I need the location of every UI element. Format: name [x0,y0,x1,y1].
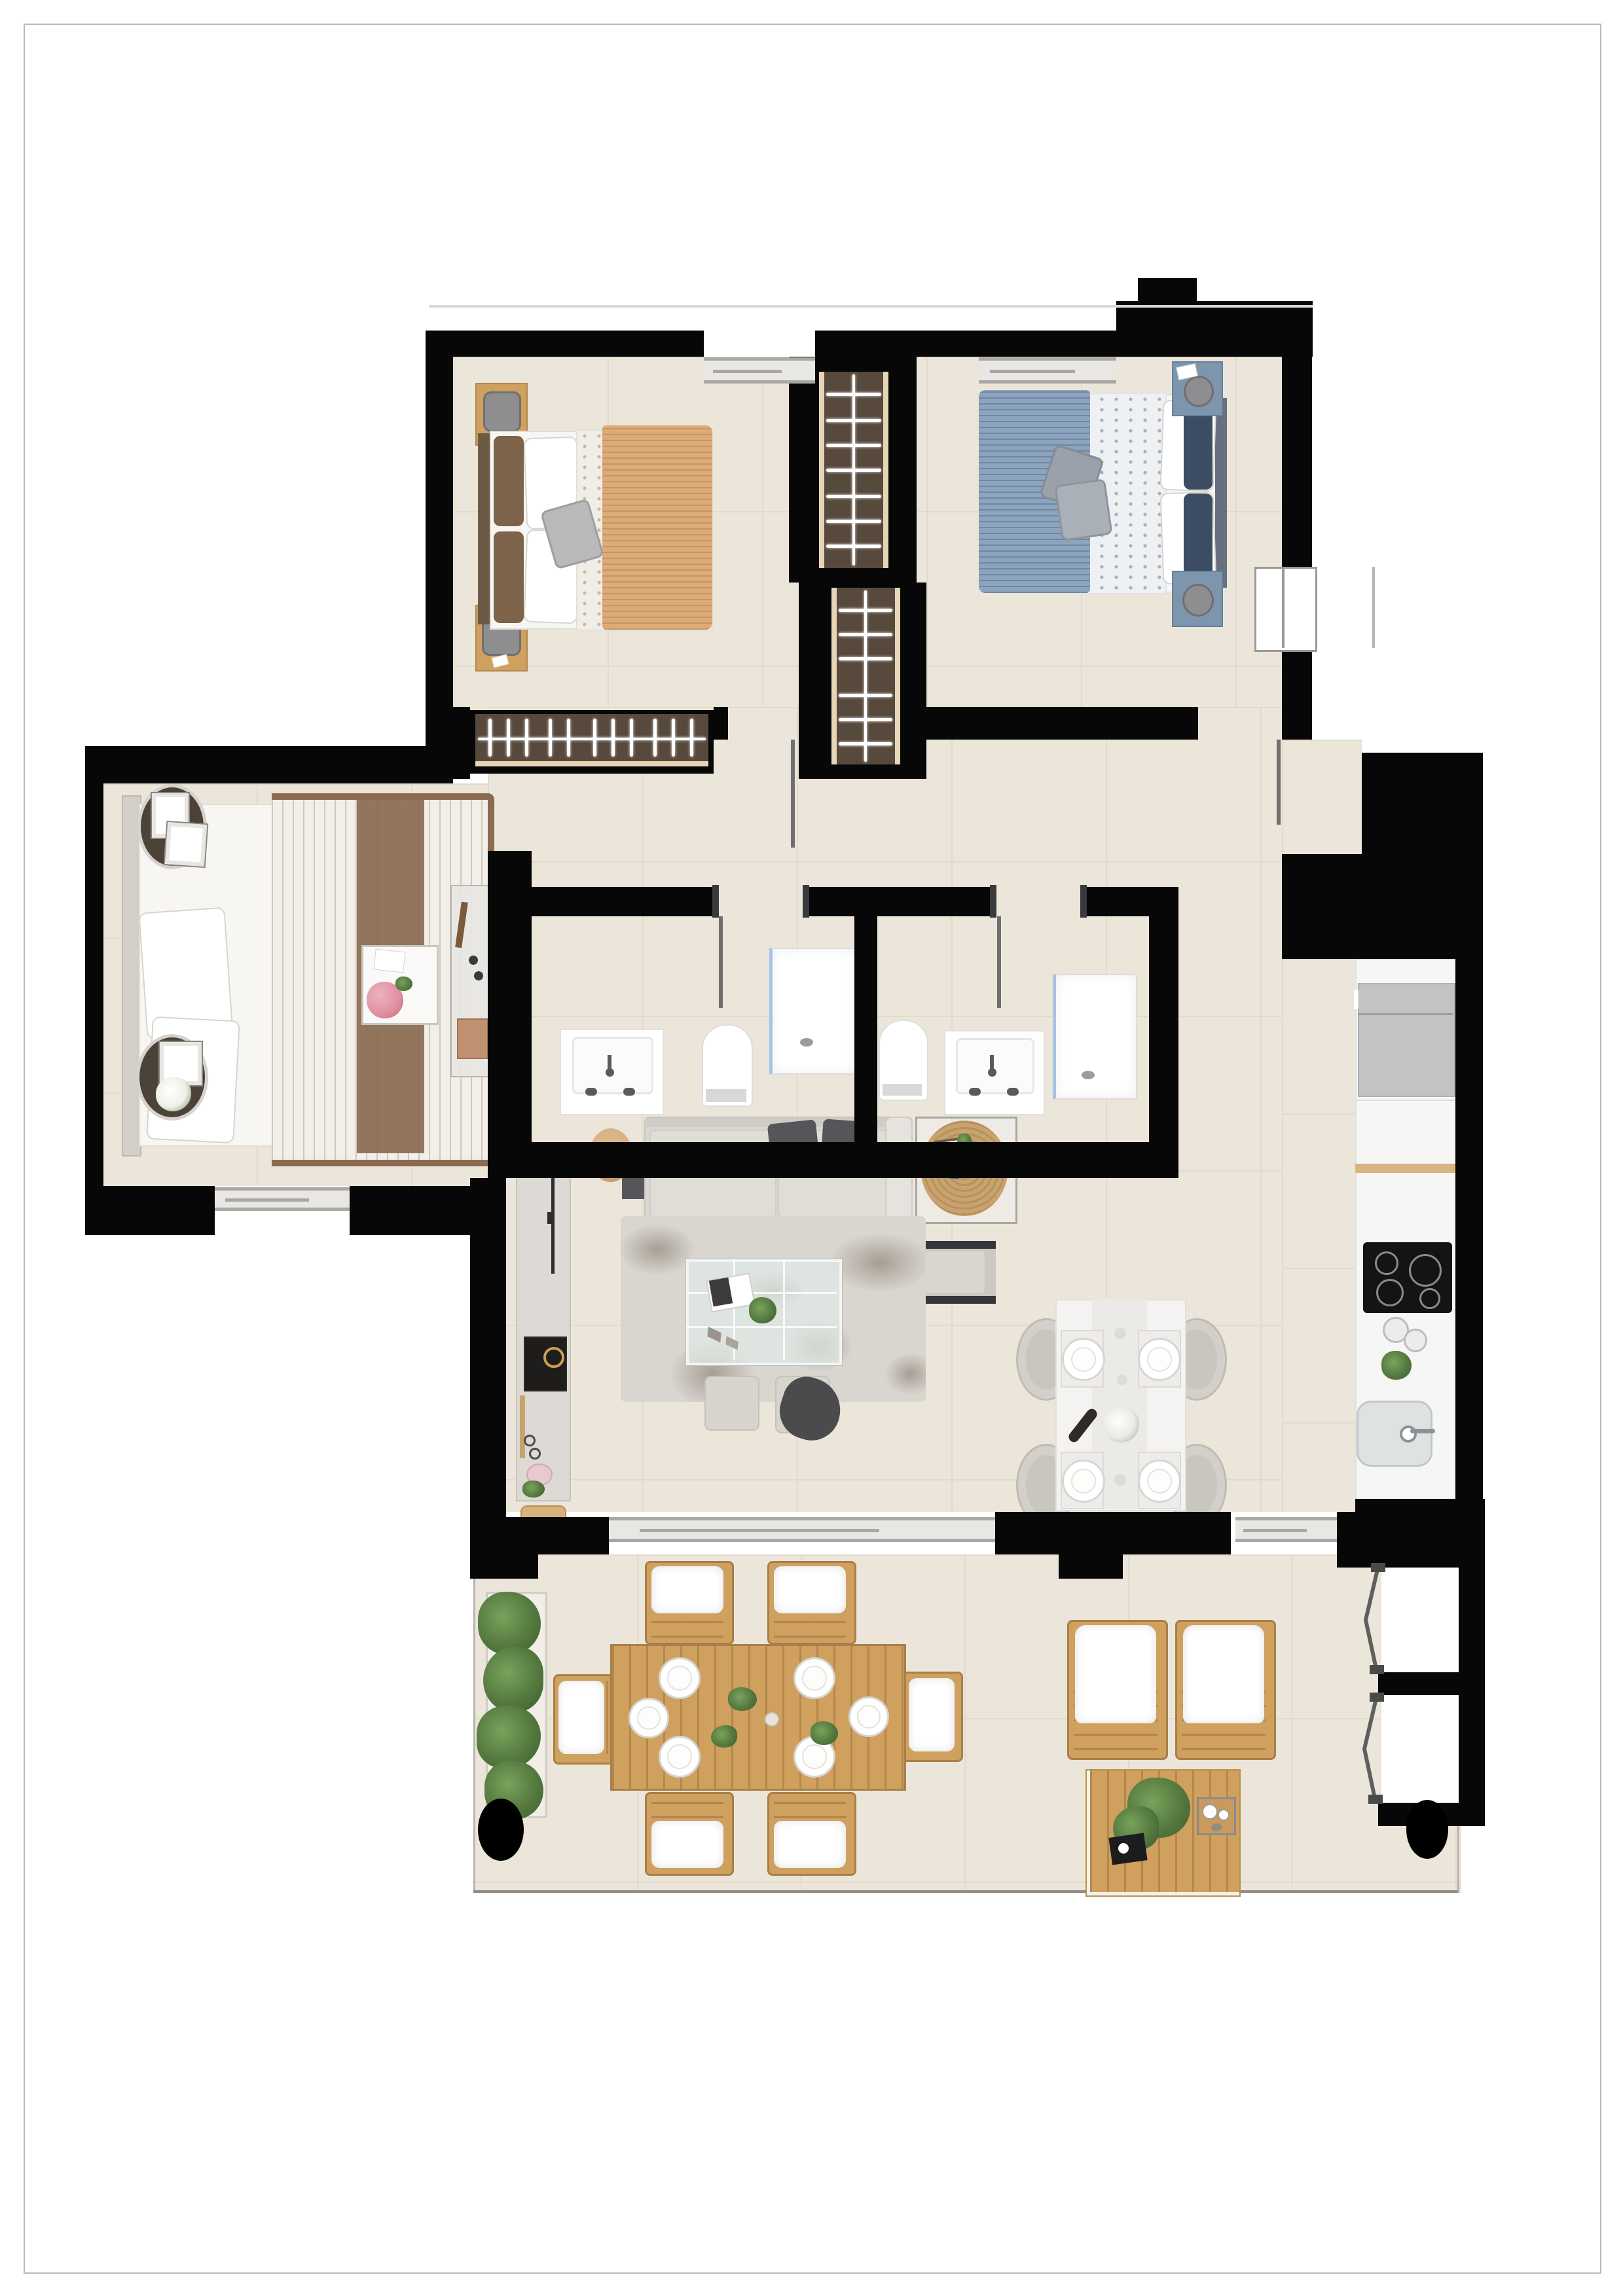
bath1-toilet-base [706,1089,746,1102]
shower-drain-icon [800,1038,813,1047]
book-on-tray [373,949,405,973]
decor-ring [524,1435,536,1446]
picture-frame-icon [165,822,207,867]
hanger-icon [826,545,881,548]
closet-rail [883,372,888,568]
plate-icon [848,1696,889,1737]
wall-terrace-right-a [1459,1568,1485,1672]
hanger-icon [653,719,657,757]
coffee-table-grid [783,1259,785,1360]
kitchen-sink [1357,1401,1432,1467]
bed1-headboard [478,433,490,624]
door-leaf-bedroom2 [1277,740,1281,825]
wall-master-bath-divider [488,851,532,1142]
leaf-icon [395,977,412,991]
closet-rail [819,372,824,568]
hanger-icon [826,444,881,447]
wall-bedroom1-west [426,331,453,779]
cup-icon [1218,1809,1230,1821]
bath2-shower [1053,974,1137,1100]
wall-terrace-step-a [506,1517,609,1554]
wall-bedroom1-south [714,707,728,740]
bath1-shower [769,948,856,1075]
round-column [478,1799,524,1861]
console-decor-tray [457,1018,488,1059]
kitchen-wood-board [1355,1164,1455,1173]
pot-icon [1404,1329,1427,1352]
armchair-seat [924,1251,985,1293]
bath2-toilet-base [883,1084,922,1096]
chair-slats [774,1796,846,1818]
bath2-basin [956,1038,1034,1094]
terrace-edge-right [1457,1826,1459,1892]
wall-south-mid [995,1512,1231,1554]
fridge [1358,983,1455,1097]
runner-dish-icon [1114,1474,1126,1486]
wardrobe-rail [475,761,708,766]
wall-bath-north-b [807,887,854,916]
terrace-sliding-door-2 [1235,1517,1337,1542]
wall-master-south-b [350,1186,488,1235]
magazine-dot [1118,1843,1129,1854]
closet-rail [895,588,900,764]
hanger-icon [525,719,528,757]
kitchen-plant-icon [1381,1351,1412,1380]
faucet-icon [988,1068,996,1077]
wall-ne-block [1362,753,1483,854]
window-east-outer-line [1372,567,1375,648]
planter-bush [483,1647,543,1712]
door-frame-tick [990,885,996,918]
round-column [1406,1800,1448,1859]
hanger-icon [839,718,892,721]
decor-stick [520,1395,525,1458]
chair-slats [651,1796,723,1818]
tap-handle-icon [969,1088,981,1096]
wall-kitchen-bottom [1355,1499,1485,1513]
plate-icon [1062,1338,1105,1381]
hob-burner [1376,1279,1404,1306]
wall-bath-mid [854,887,877,1142]
stone-icon [1211,1823,1222,1831]
hanger-icon [630,719,633,757]
hanger-icon [826,520,881,523]
runner-dish-icon [1114,1327,1126,1339]
hanger-icon [611,719,615,757]
hanger-icon [839,657,892,660]
bed2-navy-bolster [1184,493,1213,581]
wall-master-west [85,746,103,1235]
sliding-window-bedroom2 [979,357,1116,384]
teapot-icon [1202,1804,1218,1820]
door-frame-tick [1080,885,1087,918]
door-frame-tick [712,885,719,918]
wall-bedroom2-east-a [1282,357,1312,568]
table-greenery-icon [728,1687,757,1711]
wall-terrace-right-b [1459,1695,1485,1803]
chair-cushion [909,1678,955,1751]
wall-south-stub [1059,1554,1123,1579]
plate-icon [1062,1460,1105,1503]
fridge-handle [1354,990,1359,1009]
closet-rail [831,588,837,764]
console-decor-dot [474,971,483,980]
faucet-icon [606,1068,614,1077]
table-greenery-icon [711,1725,737,1748]
console-decor-dot [469,956,478,965]
tray-icon [1184,376,1214,407]
door-leaf-bath2 [997,916,1001,1008]
hanger-icon [826,495,881,498]
chair-cushion [651,1566,723,1613]
plate-icon [659,1657,701,1699]
faucet-icon [1400,1426,1417,1443]
planter-bush [478,1592,541,1655]
decor-gold-rings [543,1347,564,1368]
hanger-icon [672,719,675,757]
hanger-icon [839,742,892,745]
hob-burner [1419,1288,1440,1309]
plate-icon [1138,1338,1181,1381]
hanger-icon [839,633,892,636]
hanger-icon [593,719,596,757]
roof-line [429,305,1313,308]
plate-icon [793,1657,835,1699]
hanger-icon [839,609,892,612]
lounge-cushion [1075,1625,1156,1723]
tray-icon [483,391,521,432]
hanger-icon [567,719,570,757]
hanger-icon [690,719,693,757]
closet-center-rail [864,590,867,762]
hanger-icon [507,719,510,757]
chair-cushion [651,1821,723,1868]
table-plant-icon [749,1297,776,1323]
wall-bedroom2-south [926,707,1198,740]
door-frame-tick [803,885,809,918]
terrace-edge-left [473,1579,475,1893]
hanger-icon [826,393,881,396]
wall-terrace-step-b [470,1554,538,1579]
bath1-basin [572,1037,653,1094]
chair-cushion [774,1566,846,1613]
wall-exterior-bump [1138,278,1197,304]
wall-bedroom2-north [979,331,1116,357]
window-east-bedroom2 [1254,567,1317,652]
wall-bedroom1-south-stub [453,707,470,779]
wall-kitchen-top [1282,854,1483,959]
decor-ring [529,1448,541,1460]
counter-seam [1355,1100,1455,1101]
fridge-divider [1358,1013,1453,1015]
wall-bedroom2-east-b [1282,647,1312,740]
wall-bath-north-a [532,887,717,916]
plate-icon [629,1698,669,1738]
bed1-tan-blanket [602,425,712,630]
wall-bedroom2-north-block [1116,301,1313,357]
plate-icon [1138,1460,1181,1503]
master-sliding-door [215,1187,350,1211]
tap-handle-icon [1007,1088,1019,1096]
hanger-icon [839,694,892,697]
bed1-bolster-pillow [494,531,524,623]
floor-plan-page [0,0,1623,2296]
plate-icon [659,1736,701,1778]
tray-icon [1182,584,1214,617]
terrace-sliding-door-1 [609,1517,995,1542]
wall-bath-south [488,1142,1178,1178]
decor-plant [522,1480,545,1498]
wall-north-mid [815,331,979,357]
wall-bedroom1-north [426,331,704,357]
chair-cushion [558,1681,604,1754]
wall-master-south-a [85,1186,215,1235]
chair-cushion [774,1821,846,1868]
wall-kitchen-right [1455,959,1483,1499]
tap-handle-icon [623,1088,635,1096]
hanger-icon [826,419,881,422]
bed2-headboard [1215,398,1227,588]
rose-centerpiece-icon [1104,1407,1139,1443]
lounge-cushion [1183,1625,1264,1723]
tap-handle-icon [585,1088,597,1096]
door-leaf-bedroom1 [791,740,795,848]
hob-burner [1409,1254,1442,1287]
runner-dish-icon [1117,1374,1127,1385]
shower-drain-icon [1082,1071,1095,1079]
wall-bath-east [1149,887,1178,1142]
table-decor-dot [765,1712,779,1727]
chair-slats [774,1615,846,1638]
hanger-icon [549,719,552,757]
sliding-window-bedroom1 [704,357,815,384]
tv-bracket [547,1212,553,1224]
hob-burner [1375,1251,1398,1275]
table-greenery-icon [811,1721,838,1745]
bed2-gray-throw-pillow [1054,478,1112,541]
chair-slats [651,1615,723,1638]
pouf [704,1376,759,1431]
wall-bath-north-c [877,887,995,916]
door-leaf-bath1 [719,916,723,1008]
hanger-icon [488,719,492,757]
glass-balustrade [1349,1558,1408,1813]
hanger-icon [826,469,881,472]
window-east-glass-line [1282,567,1285,648]
bed1-bolster-pillow [494,436,524,526]
wall-master-north [85,746,453,783]
faucet-icon [1410,1429,1435,1433]
floor-hall-right [1282,740,1362,854]
terrace-edge-bottom [473,1890,1459,1893]
